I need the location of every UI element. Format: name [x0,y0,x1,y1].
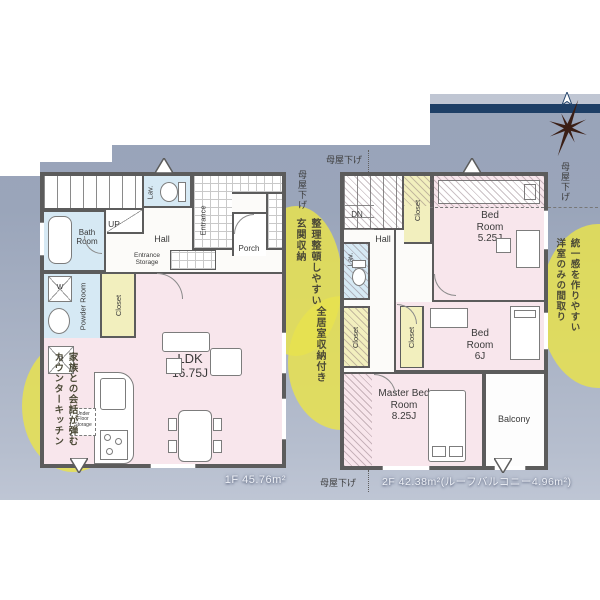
pillow [524,184,536,200]
bathtub [48,216,72,264]
pillow [514,310,536,318]
pillow [432,446,446,457]
bed2-size: 6J [452,351,508,363]
callout-text-western-rooms: 統一感を作りやすい 洋室のみの間取り [552,238,581,378]
window [282,398,286,440]
entrance-storage-label: Entrance Storage [124,252,170,267]
window [382,466,430,470]
porch-label: Porch [232,244,266,253]
chair [168,440,177,453]
lavatory-label: Lav. [144,178,156,206]
eaves-label-left: 母屋下げ [296,170,309,222]
stove-burner [115,438,122,445]
entrance-storage-shelf [170,250,216,270]
hall-label-1f: Hall [144,234,180,244]
pillow [449,446,463,457]
bed2-name: Bed Room [463,328,497,351]
closet-1f-label: Closet [106,280,132,330]
floor1-area-label: 1F 45.76m² [160,474,286,486]
callout-text-counter-kitchen: 家族との会話が弾む カウンターキッチン [50,352,79,464]
desk [516,230,540,268]
eaves-label-bottom: 母屋下げ [320,476,356,489]
closet-2f-top-label: Closet [406,184,430,236]
chair [496,238,511,253]
balcony-label: Balcony [484,414,544,424]
toilet [352,268,366,286]
window [150,464,196,468]
washer-label: W [48,284,72,292]
roof-triangle-marker [155,158,173,173]
bed2-label: Bed Room 6J [452,328,508,363]
window [544,210,548,250]
stove-burner [106,448,113,455]
wash-basin [48,308,70,334]
roof-triangle-marker [463,158,481,173]
callout-text-all-rooms-storage: 全居室収納付き [312,306,327,424]
master-size: 8.25J [376,411,432,423]
eaves-guide-line [548,207,598,208]
stove-burner [104,434,111,441]
chair [213,418,222,431]
roof-triangle-marker [494,458,512,473]
kitchen-sink [100,378,126,410]
window [544,312,548,350]
lavatory-2f-label: Lav. [344,246,356,272]
sofa [162,332,210,352]
entrance-label: Entrance [194,194,212,246]
desk [430,308,468,328]
eaves-boundary-line [430,207,544,208]
chair [168,418,177,431]
eaves-guide-line [368,470,369,492]
stairs-up [44,176,144,210]
powder-label: Powder Room [74,276,92,336]
coffee-table [166,358,182,374]
bed1-name: Bed Room [473,210,507,233]
chair [213,440,222,453]
eaves-label-top: 母屋下げ [326,153,362,166]
dining-table [178,410,212,462]
closet-2f-left-label: Closet [344,312,368,362]
window [282,332,286,374]
floorplan-2f: DN Closet Bed Room 5.25J Hall Lav. Close… [340,172,548,470]
north-compass-icon [536,92,600,158]
window [40,222,44,256]
shoe-shelf [232,176,282,194]
toilet [160,182,178,202]
toilet-tank [178,182,186,202]
floorplan-flyer: UP Lav. Entrance Porch Hall Entrance Sto… [0,0,600,600]
toilet-tank [352,260,366,268]
eaves-guide-line [368,150,369,172]
entrance-side-shelf [266,194,282,250]
dn-label: DN [346,210,368,219]
sofa [210,348,242,376]
floor2-area-label: 2F 42.38m²(ルーフバルコニー4.96m²) [382,474,572,489]
